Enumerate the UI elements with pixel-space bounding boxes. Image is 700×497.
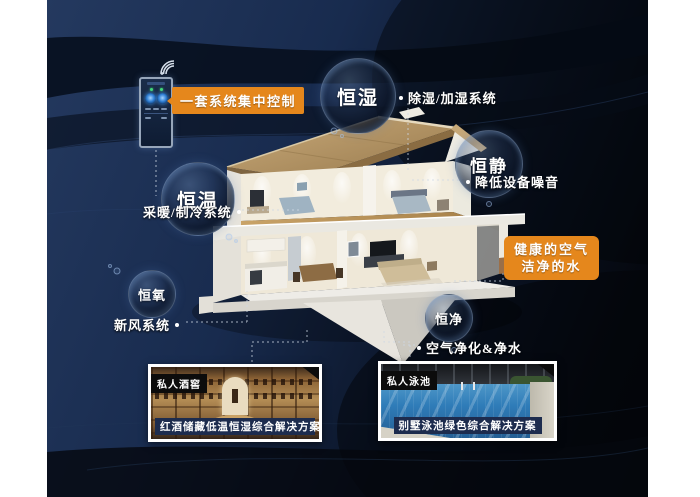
bullet-dot: [237, 210, 241, 214]
wine-cellar-photo: 私人酒窖 红酒储藏低温恒湿综合解决方案: [151, 367, 319, 439]
infographic-page: 一套系统集中控制 恒湿 恒静 恒温 恒氧 恒净 除湿/加湿系统 降低设备噪音 采…: [0, 0, 700, 497]
phone-status-leds: [141, 88, 171, 91]
card-caption: 红酒储藏低温恒湿综合解决方案: [155, 418, 315, 435]
card-caption: 别墅泳池绿色综合解决方案: [394, 417, 542, 434]
smart-control-panel: [139, 77, 173, 148]
wine-cellar-card: 私人酒窖 红酒储藏低温恒湿综合解决方案: [148, 364, 322, 442]
healthy-air-clean-water-box: 健康的空气 洁净的水: [504, 236, 599, 280]
label-noise-reduction: 降低设备噪音: [466, 172, 559, 191]
blue-knob: [145, 93, 156, 104]
green-led: [150, 88, 153, 91]
bubble-constant-temperature: 恒温: [161, 162, 235, 236]
phone-title-bar: [147, 82, 165, 85]
label-heating-cooling-system: 采暖/制冷系统: [143, 202, 241, 221]
label-air-water-purification: 空气净化&净水: [417, 338, 522, 357]
central-control-label: 一套系统集中控制: [172, 87, 304, 114]
bullet-dot: [175, 323, 179, 327]
pool-card: 私人泳池 别墅泳池绿色综合解决方案: [378, 361, 557, 441]
bullet-dot: [466, 180, 470, 184]
bullet-dot: [399, 96, 403, 100]
card-tag: 私人泳池: [381, 371, 437, 390]
bubble-constant-humidity: 恒湿: [320, 58, 396, 134]
pool-ladder: [461, 382, 475, 390]
label-fresh-air-system: 新风系统: [114, 315, 179, 334]
bubble-constant-purity: 恒净: [425, 294, 473, 342]
card-tag: 私人酒窖: [151, 374, 207, 393]
pool-photo: 私人泳池 别墅泳池绿色综合解决方案: [381, 364, 554, 438]
green-led: [160, 88, 163, 91]
label-dehumidify-system: 除湿/加湿系统: [399, 88, 497, 107]
wifi-signal-icon: [159, 59, 179, 76]
bullet-dot: [417, 346, 421, 350]
infographic-canvas: 一套系统集中控制 恒湿 恒静 恒温 恒氧 恒净 除湿/加湿系统 降低设备噪音 采…: [47, 0, 648, 497]
blue-knob: [157, 93, 168, 104]
bubble-constant-oxygen: 恒氧: [128, 270, 176, 318]
